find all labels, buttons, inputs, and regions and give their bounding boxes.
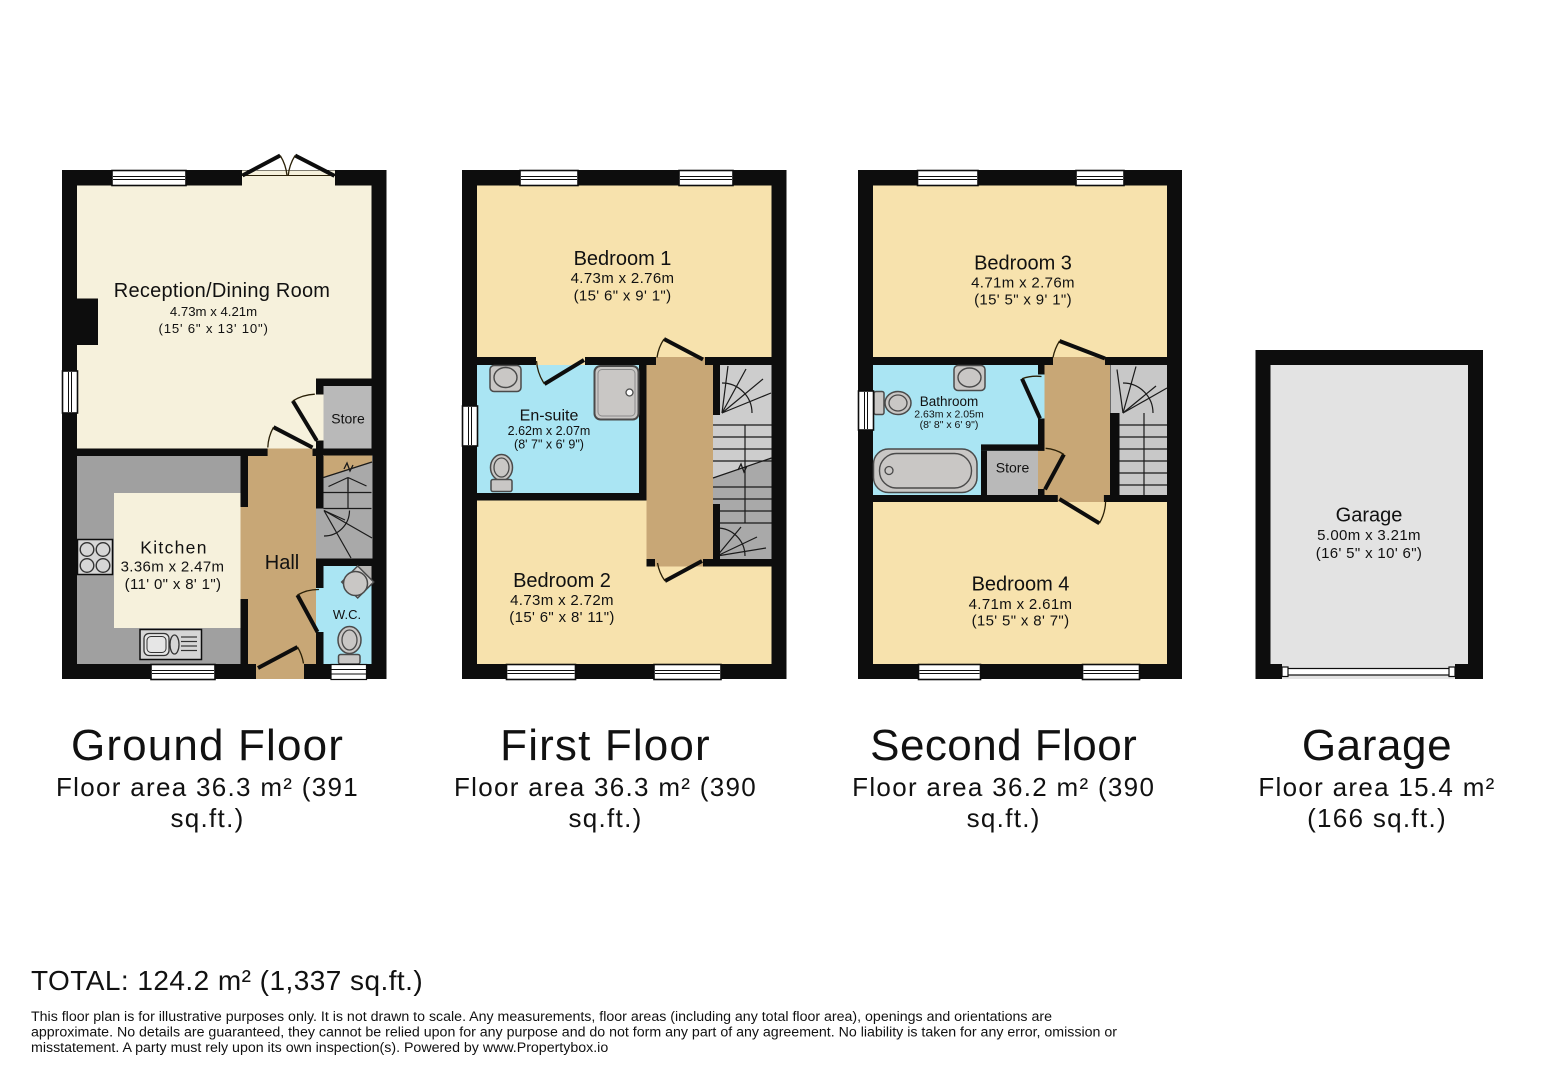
svg-text:This floor plan is for illustr: This floor plan is for illustrative purp… [31, 1009, 1052, 1025]
svg-text:Bathroom: Bathroom [920, 394, 979, 409]
svg-text:sq.ft.): sq.ft.) [568, 803, 642, 833]
svg-text:5.00m x 3.21m: 5.00m x 3.21m [1317, 527, 1421, 544]
svg-text:(15' 6" x 9' 1"): (15' 6" x 9' 1") [574, 288, 672, 305]
svg-text:Reception/Dining Room: Reception/Dining Room [114, 280, 330, 302]
svg-text:(15' 5" x 8' 7"): (15' 5" x 8' 7") [972, 613, 1070, 630]
svg-text:3.36m x 2.47m: 3.36m x 2.47m [121, 559, 225, 576]
svg-text:Bedroom 1: Bedroom 1 [574, 248, 672, 270]
svg-text:(166 sq.ft.): (166 sq.ft.) [1307, 803, 1447, 833]
svg-text:2.62m x 2.07m: 2.62m x 2.07m [508, 424, 591, 438]
svg-text:(11' 0" x 8' 1"): (11' 0" x 8' 1") [125, 576, 222, 593]
svg-text:Kitchen: Kitchen [140, 538, 207, 558]
svg-text:sq.ft.): sq.ft.) [170, 803, 244, 833]
svg-text:(15' 5" x 9' 1"): (15' 5" x 9' 1") [974, 292, 1072, 309]
svg-text:(8' 7" x 6' 9"): (8' 7" x 6' 9") [514, 438, 584, 452]
svg-text:4.73m x 2.76m: 4.73m x 2.76m [571, 270, 675, 287]
svg-text:sq.ft.): sq.ft.) [967, 803, 1041, 833]
svg-text:approximate. No details are gu: approximate. No details are guaranteed, … [31, 1025, 1117, 1041]
svg-text:Store: Store [996, 460, 1030, 476]
svg-text:Floor area 36.2 m² (390: Floor area 36.2 m² (390 [852, 772, 1155, 802]
svg-text:4.71m x 2.61m: 4.71m x 2.61m [969, 596, 1073, 613]
svg-text:Floor area 36.3 m² (391: Floor area 36.3 m² (391 [56, 772, 359, 802]
svg-text:Bedroom 4: Bedroom 4 [972, 574, 1070, 596]
svg-text:4.73m x 4.21m: 4.73m x 4.21m [170, 304, 257, 319]
svg-text:4.71m x 2.76m: 4.71m x 2.76m [971, 275, 1075, 292]
svg-text:4.73m x 2.72m: 4.73m x 2.72m [510, 592, 614, 609]
svg-text:En-suite: En-suite [520, 408, 579, 425]
svg-text:Hall: Hall [265, 552, 299, 574]
svg-text:Second Floor: Second Floor [870, 721, 1137, 770]
svg-text:misstatement. A party must rel: misstatement. A party must rely upon its… [31, 1040, 608, 1056]
svg-text:First Floor: First Floor [500, 721, 711, 770]
svg-text:W.C.: W.C. [333, 607, 361, 622]
svg-text:(8' 8" x 6' 9"): (8' 8" x 6' 9") [920, 419, 979, 431]
svg-text:TOTAL: 124.2 m² (1,337 sq.ft.): TOTAL: 124.2 m² (1,337 sq.ft.) [31, 965, 423, 996]
svg-text:Floor area 15.4 m²: Floor area 15.4 m² [1258, 772, 1495, 802]
svg-text:Garage: Garage [1336, 505, 1403, 527]
svg-text:Bedroom 3: Bedroom 3 [974, 253, 1072, 275]
svg-text:(16' 5" x 10' 6"): (16' 5" x 10' 6") [1316, 545, 1423, 562]
svg-text:Bedroom 2: Bedroom 2 [513, 570, 611, 592]
svg-text:Floor area 36.3 m² (390: Floor area 36.3 m² (390 [454, 772, 757, 802]
svg-text:Store: Store [331, 411, 365, 427]
svg-text:(15' 6" x 13' 10"): (15' 6" x 13' 10") [159, 321, 269, 336]
svg-text:(15' 6" x 8' 11"): (15' 6" x 8' 11") [509, 609, 614, 626]
svg-text:Ground Floor: Ground Floor [71, 721, 344, 770]
svg-text:Garage: Garage [1302, 721, 1452, 770]
